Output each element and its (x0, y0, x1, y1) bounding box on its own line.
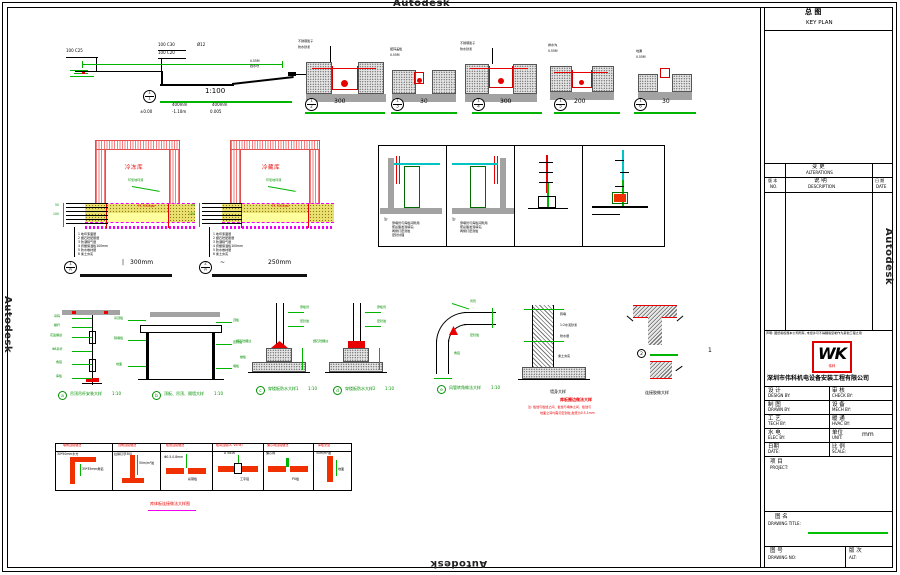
dim-line (302, 348, 303, 370)
tick (620, 172, 629, 173)
alterations-cn: 变 更 (812, 164, 825, 170)
dim-tick (82, 61, 83, 68)
curb-line (70, 76, 94, 77)
leader (216, 322, 232, 323)
wall-bar (388, 158, 394, 208)
turnbuckle (89, 359, 96, 372)
green-underline (391, 112, 457, 114)
project-en: PROJECT: (770, 466, 788, 470)
green-accent (80, 464, 81, 476)
floor-layer-yellow (106, 213, 169, 222)
date-en: DATE (876, 185, 886, 189)
leader (492, 48, 493, 64)
detail-bubble: 1 6 (634, 98, 647, 111)
caption-scale: 1:10 (385, 387, 394, 391)
watermark-right: Autodesk (883, 228, 894, 285)
rev-en: ALT: (849, 556, 857, 560)
bubble-bottom: 6 (638, 105, 644, 108)
base (522, 367, 586, 379)
red-edge (650, 361, 672, 362)
label: 砖墙 (560, 313, 566, 316)
dim: 300 (334, 99, 345, 106)
ramp-end-label: 0.55M (250, 60, 259, 63)
ground-line (75, 71, 163, 72)
dim: 30 (420, 99, 428, 106)
rod (92, 315, 93, 385)
detail-letter: b (155, 394, 159, 398)
hatch-block (432, 70, 456, 94)
caption-scale: 1:10 (112, 392, 121, 396)
caption-scale: 1:10 (491, 386, 500, 390)
leader (66, 211, 108, 212)
bubble-top: 1 (638, 99, 644, 102)
panel-piece (70, 457, 75, 484)
tb-col-line (785, 163, 786, 330)
callout-line (209, 227, 210, 257)
red-tick (308, 204, 309, 228)
base-slab (306, 94, 386, 102)
label: 防水砂浆 (298, 46, 310, 49)
panel-divider (446, 145, 447, 247)
label: 素土夯实 (558, 355, 570, 358)
scale-bar (80, 274, 172, 277)
label: 密封胶 (470, 334, 479, 337)
leader (202, 207, 242, 208)
cell-label: 彩钢板 (188, 478, 197, 481)
key-plan-en: KEY PLAN (806, 20, 833, 26)
leg (146, 333, 149, 379)
label: 地面 (116, 363, 122, 366)
cell-label: 50m/m²胶 (139, 462, 154, 465)
cell-header: 偏心钩连接做法 (267, 444, 288, 447)
membrane-hatch (222, 226, 334, 229)
slab (329, 362, 383, 372)
drain-blob (417, 78, 422, 83)
channel (660, 68, 670, 78)
label: 地漏 (636, 50, 642, 53)
scale-dim: 300mm (130, 260, 153, 267)
label: 穿板管 (300, 306, 309, 309)
pipe (497, 156, 498, 184)
leader (66, 219, 108, 220)
leader (202, 219, 242, 220)
cell-label: A VIEW (224, 452, 235, 455)
leader (202, 215, 242, 216)
label: 细石砼翻边 (236, 340, 251, 343)
scale-tick: ~ (220, 260, 225, 267)
curb (343, 348, 369, 362)
floor-line (592, 214, 620, 215)
bubble-top: 2 (203, 262, 209, 265)
field-en: DATE: (768, 450, 780, 454)
slab-line (325, 372, 387, 373)
label: 防水砂浆 (460, 48, 472, 51)
bubble-top: 1 (476, 99, 482, 102)
sleeve-box (538, 196, 556, 208)
company-logo: WK 伟科 (812, 341, 852, 373)
drain-blob (579, 80, 584, 85)
label: 花篮螺丝 (50, 334, 62, 337)
ramp-floor (160, 84, 234, 86)
tick (539, 162, 553, 163)
duct-line (448, 340, 449, 374)
strip-caption: 库体板连接做法大样图 (150, 502, 190, 506)
field-en: TECH BY: (768, 422, 786, 426)
detail-bubble: 1 3 (391, 98, 404, 111)
label: 风管 (470, 300, 476, 303)
leader (72, 327, 92, 328)
hatch-block (550, 66, 572, 92)
cell-label: PU板 (292, 478, 299, 481)
caption: 风管转角做法大样 (449, 386, 481, 390)
tb-col-line (872, 163, 873, 330)
red-fixing (72, 311, 76, 314)
scale-bar (212, 274, 307, 277)
drawing-title-en: DRAWING TITLE: (768, 522, 801, 526)
floor-line (528, 208, 568, 209)
leader (128, 320, 146, 321)
coat-label: 环氧地坪漆 (128, 179, 143, 182)
label: 楼板 (240, 356, 246, 359)
key-plan-cn: 总 图 (805, 9, 821, 17)
strip-divider (212, 443, 213, 491)
leader (66, 215, 108, 216)
floor-layer-speckle (309, 213, 334, 222)
membrane-hatch (85, 226, 195, 229)
room-name: 冷藏库 (262, 165, 280, 171)
leader (72, 364, 92, 365)
detail-letter: e (440, 388, 444, 392)
strip-divider (263, 443, 264, 491)
detail-bubble: 1 A (64, 261, 77, 274)
panel-line (82, 383, 102, 384)
green-line (524, 341, 564, 342)
callout-line (74, 227, 75, 257)
floor-line (592, 206, 648, 208)
hatch-block (358, 62, 384, 94)
dim: 300 (500, 99, 511, 106)
bubble-bottom: 3 (395, 105, 401, 108)
detail-number-bubble: 2 (637, 349, 646, 358)
drawing-title-cn: 图 名 (775, 514, 788, 520)
watermark-bottom: Autodesk (430, 558, 487, 569)
hatch-block (672, 74, 692, 92)
ramp-level-1: ±0.00 (140, 110, 152, 114)
hatch-block (592, 66, 614, 92)
detail-letter-bubble: e (437, 385, 446, 394)
cell-label: 30*50mm木方 (57, 453, 78, 456)
red-fixing (104, 311, 108, 314)
floor (380, 208, 442, 214)
bubble-top: 1 (309, 99, 315, 102)
line (66, 57, 98, 58)
field-en: DRAWN BY: (768, 408, 790, 412)
green-accent (186, 454, 187, 468)
bubble-bottom: 5 (558, 105, 564, 108)
floor (452, 208, 514, 214)
dim-bracket (63, 203, 64, 227)
ramp-label-c30: 100 C30 (158, 43, 175, 47)
dim: 100 (53, 213, 59, 216)
red-tick (168, 204, 169, 228)
strip-divider (313, 443, 314, 491)
green-underline (554, 112, 620, 114)
green-underline (305, 112, 385, 114)
curb (266, 348, 292, 362)
label: 隔墙板 (114, 337, 123, 340)
label: 穿板管 (377, 306, 386, 309)
red-edge (633, 317, 648, 318)
bubble-bottom: A (68, 268, 74, 271)
panel-piece (122, 478, 144, 483)
seal-cap (348, 341, 365, 348)
side-number: 1 (708, 348, 712, 355)
wall-top (230, 140, 320, 150)
panel-piece (290, 466, 308, 472)
caption-scale: 1:10 (308, 387, 317, 391)
detail-bubble: 1 2 (305, 98, 318, 111)
cell-label: 偏心钩 (266, 452, 275, 455)
label: Φ8吊杆 (52, 348, 62, 351)
logo-text: WK (814, 343, 850, 365)
company-name: 深圳市伟科机电设备安装工程有限公司 (767, 376, 869, 383)
cell-label: 拉铆钉@300 (114, 453, 132, 456)
detail-letter: a (61, 394, 65, 398)
seal-fill (614, 194, 626, 202)
cell-label: 50m/m²胶 (316, 452, 331, 455)
strip-divider (112, 443, 113, 491)
tick (539, 182, 553, 183)
leader (202, 223, 242, 224)
detail-letter-bubble: c (256, 386, 265, 395)
drain-blob (341, 80, 348, 87)
red-edge (650, 378, 672, 379)
wall-top (95, 140, 180, 150)
note-label: 注: (384, 218, 388, 221)
cell-label: 地面 (338, 468, 344, 471)
unit-value: mm (862, 432, 874, 439)
curb-line (74, 73, 88, 74)
top-panel (140, 325, 222, 333)
panel-divider (582, 145, 583, 247)
step-line (162, 71, 163, 85)
watermark-left: Autodesk (2, 296, 13, 353)
line (158, 58, 186, 59)
ramp-level-3: 0.005 (210, 110, 221, 114)
drawing-title-value-line (808, 532, 888, 534)
detail-letter: c (259, 389, 263, 393)
cyan-pipe (622, 150, 624, 180)
leader (72, 318, 92, 319)
leader (202, 211, 242, 212)
red-line (470, 68, 528, 69)
bubble-bottom: A (203, 268, 209, 271)
coat-label: 环氧地坪漆 (266, 179, 281, 182)
label: 0.55M (548, 50, 557, 53)
bubble-top: 1 (68, 262, 74, 265)
bubble-top: 1 (558, 99, 564, 102)
drawing-no-cn: 图 号 (770, 548, 783, 554)
tb-col-line (845, 546, 846, 568)
label: 密封胶 (377, 320, 386, 323)
copyright-disclaimer: 声明: 图纸版权属本公司所有, 未经许可不得翻版复制作为其他工程之用 (766, 332, 862, 335)
ceiling-bar (62, 310, 120, 315)
label: 角铝 (454, 352, 460, 355)
cell-header: 库板安装 (318, 444, 330, 447)
cell-header: 顶角连接做法 (118, 444, 136, 447)
tb-line (765, 456, 893, 457)
slab-label: PC 3500psi (138, 205, 155, 208)
green-accent (137, 455, 138, 475)
leader (72, 351, 92, 352)
logo-subtext: 伟科 (825, 365, 839, 367)
leader (216, 344, 232, 345)
cell-header: 墙角连接做法 (63, 444, 81, 447)
label: 防水层 (560, 335, 569, 338)
titleblock-separator-outer (760, 7, 761, 568)
note-line: 注: 板缝与板缝之间、板缝与墙体之间、板缝与 (528, 406, 591, 409)
detail-bubble: 1 1 (143, 90, 156, 103)
ramp-label-c25: 100 C25 (66, 49, 83, 53)
ramp-dim-a: 400mm (172, 103, 187, 107)
alterations-en: ALTERATIONS (806, 171, 833, 175)
leader (202, 203, 242, 204)
hatch-block (306, 62, 332, 94)
label: 顶板 (233, 319, 239, 322)
desc-en: DESCRIPTION (808, 185, 835, 189)
ramp-label-dia: Ø12 (197, 43, 205, 47)
label: 角铝 (56, 361, 62, 364)
cyan-pipe (394, 163, 440, 165)
note-line: 两侧打密封胶 (460, 230, 478, 233)
red-edge (633, 305, 677, 306)
green-accent (336, 460, 337, 476)
pipe (276, 303, 277, 349)
cell-label: 35*35mm角铝 (82, 468, 103, 471)
caption: 穿楼板防水大样1 (268, 387, 299, 391)
pipe (396, 156, 397, 184)
leader (128, 340, 146, 341)
leg (212, 333, 215, 379)
label: 吊顶板 (114, 317, 123, 320)
dim: 30 (662, 99, 670, 106)
cyan-pipe (452, 163, 498, 165)
caption: 连接胶做大样 (645, 391, 669, 395)
dim: 50 (55, 204, 59, 207)
leader (66, 203, 108, 204)
panel-piece (242, 466, 258, 472)
label: 密封胶 (300, 320, 309, 323)
panel-divider (514, 145, 515, 247)
label: 吊码 (54, 315, 60, 318)
pipe (399, 156, 400, 184)
tb-col-line (829, 386, 830, 456)
layer-label: 6 素土夯实 (213, 253, 228, 256)
ramp-scale: 1:100 (205, 88, 225, 96)
label: 0.55M (390, 54, 399, 57)
ramp-label-c20: 100 C20 (158, 51, 175, 55)
bubble-bottom: 2 (309, 105, 315, 108)
bubble-bottom: 4 (476, 105, 482, 108)
red-edge (662, 317, 677, 318)
ramp-end-label2: 挡水坎 (250, 65, 259, 68)
label: 细石砼翻边 (313, 340, 328, 343)
hatch-block (638, 74, 658, 92)
detail-letter: d (336, 389, 340, 393)
detail-letter-bubble: a (58, 391, 67, 400)
panel-piece (268, 466, 286, 472)
floor-layer-yellow (241, 213, 309, 222)
field-en: DESIGN BY: (768, 394, 790, 398)
dim-line (434, 378, 452, 379)
panel-piece (166, 468, 184, 474)
panel-piece (188, 468, 206, 474)
leader (365, 326, 381, 327)
green-accent (238, 455, 239, 463)
dim-line (379, 348, 380, 370)
cell-label: 工字铝 (240, 478, 249, 481)
drain-blob (498, 78, 504, 84)
label: 0.55M (636, 56, 645, 59)
bubble-top: 1 (147, 91, 153, 94)
wall-hatch (532, 305, 554, 367)
detail-number: 2 (640, 352, 644, 356)
label: 不锈钢篦子 (298, 40, 313, 43)
leader (72, 378, 92, 379)
leader (288, 326, 304, 327)
pipe (283, 303, 284, 349)
ceiling-bar (150, 312, 220, 317)
note-title: 库板圈边做法大样 (560, 398, 592, 402)
field-en: UNIT: (832, 436, 842, 440)
tb-line (765, 546, 893, 547)
cell-label: Φ0.5-0.8mm (164, 456, 183, 459)
label: 螺杆 (54, 324, 60, 327)
butt-joint (650, 361, 672, 379)
detail-letter-bubble: b (152, 391, 161, 400)
label: 墙板 (233, 365, 239, 368)
curb-block (288, 72, 296, 76)
panel-piece (327, 456, 333, 482)
scale-dim: 250mm (268, 260, 291, 267)
hatch-block (392, 70, 416, 94)
detail-bubble: 2 A (199, 261, 212, 274)
joint-block (234, 463, 242, 474)
tick (615, 160, 624, 161)
cell-header: 板缝连接做法 (166, 444, 184, 447)
label: 镀锌盖板 (390, 48, 402, 51)
label: 不锈钢篦子 (460, 42, 475, 45)
leader (66, 207, 108, 208)
leader (365, 312, 381, 313)
tb-line (765, 30, 893, 31)
detail-bubble: 1 4 (472, 98, 485, 111)
ramp-level-2: -1.10m (172, 110, 186, 114)
red-line (554, 72, 608, 73)
note-line: 密封处理 (392, 234, 404, 237)
green-accent (286, 458, 289, 467)
cad-sheet: Autodesk Autodesk Autodesk Autodesk 100 … (0, 0, 900, 575)
caption-underline (148, 510, 196, 511)
leader (288, 312, 304, 313)
caption-scale: 1:10 (214, 392, 223, 396)
rev-cn: 版 次 (849, 548, 862, 554)
strip-divider (160, 443, 161, 491)
layer-label: 6 素土夯实 (78, 253, 93, 256)
slab (252, 362, 306, 372)
bubble-bottom: 1 (147, 97, 153, 100)
leader (216, 368, 232, 369)
